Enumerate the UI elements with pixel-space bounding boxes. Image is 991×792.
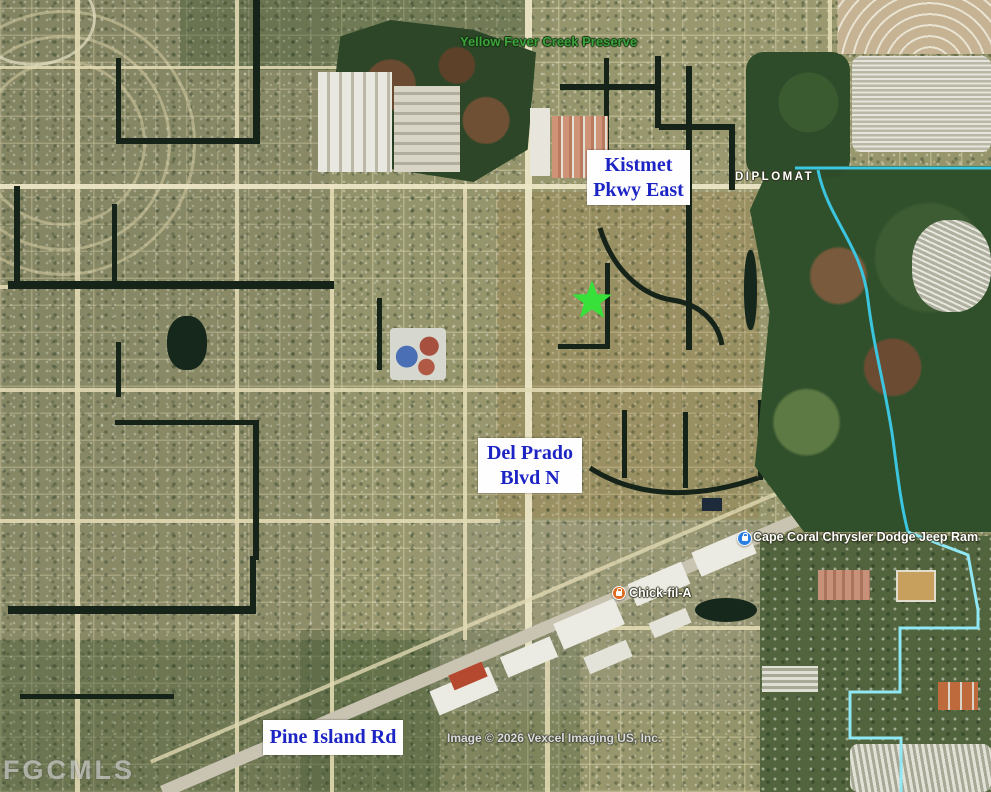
school-campus bbox=[390, 328, 446, 380]
poi-restaurant-label: Chick-fil-A bbox=[629, 586, 692, 600]
road-ns bbox=[235, 0, 239, 792]
tan-building bbox=[896, 570, 936, 602]
restaurant-pin-icon bbox=[612, 586, 626, 600]
parking-rows bbox=[762, 666, 818, 692]
lake bbox=[744, 250, 757, 330]
imagery-attribution: Image © 2026 Vexcel Imaging US, Inc. bbox=[447, 731, 661, 745]
street-sign-del-prado-blvd-n: Del Prado Blvd N bbox=[478, 438, 582, 493]
road-ew bbox=[0, 519, 500, 523]
canal-segment bbox=[686, 66, 692, 350]
shopping-bag-icon bbox=[742, 536, 748, 541]
condo-complex bbox=[818, 570, 870, 600]
canal-segment bbox=[8, 281, 334, 289]
sign-line: Kistmet bbox=[605, 153, 673, 178]
sign-line: Pine Island Rd bbox=[270, 726, 397, 749]
canal-segment bbox=[622, 410, 627, 478]
fork-knife-icon bbox=[616, 591, 622, 596]
shopping-pin-icon bbox=[737, 531, 752, 546]
industrial-park bbox=[394, 86, 460, 172]
lake bbox=[167, 316, 207, 370]
map-canvas[interactable]: Yellow Fever Creek Preserve DIPLOMAT Kis… bbox=[0, 0, 991, 792]
road-ns bbox=[463, 185, 467, 640]
road-diplomat-pkwy bbox=[0, 184, 830, 189]
preserve-label: Yellow Fever Creek Preserve bbox=[460, 34, 637, 49]
pond bbox=[695, 598, 757, 622]
rv-resort bbox=[912, 220, 991, 312]
road-ns bbox=[545, 640, 550, 792]
canal-segment bbox=[116, 342, 121, 397]
road-ns bbox=[75, 0, 80, 792]
canal-segment bbox=[8, 606, 256, 614]
mobile-home-park bbox=[852, 56, 991, 152]
retail-strip bbox=[530, 108, 550, 176]
canal-segment bbox=[20, 694, 174, 699]
canal-segment bbox=[14, 186, 20, 282]
sports-courts bbox=[938, 682, 978, 710]
poi-dealership-label: Cape Coral Chrysler Dodge Jeep Ram bbox=[753, 530, 978, 544]
canal-segment bbox=[558, 344, 610, 349]
canal-segment bbox=[605, 263, 610, 347]
industrial-park bbox=[318, 72, 392, 172]
street-sign-pine-island-rd: Pine Island Rd bbox=[263, 720, 403, 755]
street-sign-kistmet-pkwy-east: Kistmet Pkwy East bbox=[587, 150, 690, 205]
diplomat-street-label: DIPLOMAT bbox=[735, 171, 814, 183]
road-ew bbox=[0, 388, 765, 392]
sign-line: Pkwy East bbox=[593, 178, 684, 203]
canal-segment bbox=[655, 56, 661, 128]
canal-segment bbox=[253, 420, 259, 560]
canal-segment bbox=[116, 58, 121, 144]
canal-segment bbox=[683, 412, 688, 488]
canal-segment bbox=[116, 138, 260, 144]
dark-roof-building bbox=[702, 498, 722, 511]
construction-site bbox=[838, 0, 991, 54]
canal-segment bbox=[250, 556, 256, 608]
forest-topright bbox=[746, 52, 850, 178]
white-community bbox=[850, 744, 991, 792]
sign-line: Blvd N bbox=[500, 466, 559, 491]
canal-segment bbox=[112, 204, 117, 284]
road-ns bbox=[330, 185, 334, 792]
sign-line: Del Prado bbox=[487, 441, 573, 466]
canal-segment bbox=[560, 84, 658, 90]
mls-watermark: FGCMLS bbox=[3, 755, 135, 786]
canal-segment bbox=[659, 124, 735, 130]
canal-segment bbox=[253, 0, 260, 142]
canal-segment bbox=[115, 420, 257, 425]
canal-segment bbox=[377, 298, 382, 370]
